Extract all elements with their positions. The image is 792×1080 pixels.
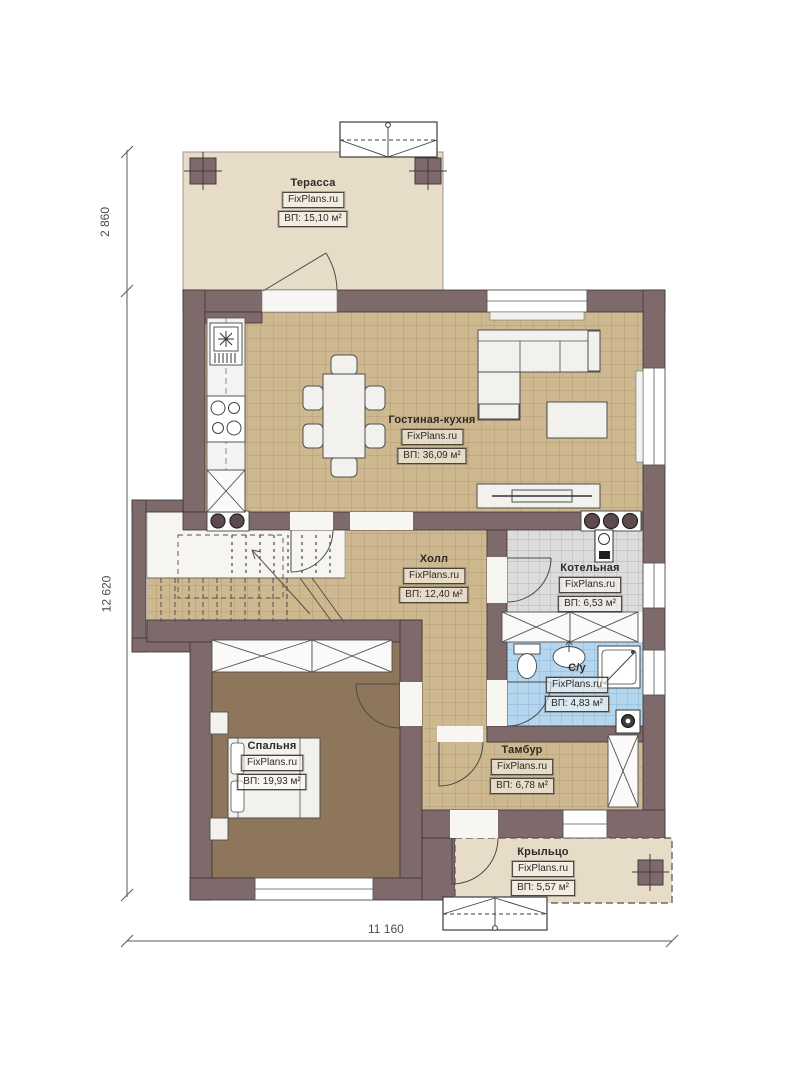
flue-right [581,511,641,531]
terrace-door-opening [262,290,337,312]
room-area: ВП: 4,83 м² [545,696,609,712]
room-name: Холл [399,553,468,565]
dimension-left-main: 12 620 [99,576,113,613]
watermark: FixPlans.ru [559,577,621,593]
stair-steps-floor [147,578,345,622]
window-boiler [643,563,665,608]
nightstand [210,818,228,840]
room-name: Терасса [278,177,347,189]
room-name: Тамбур [490,744,554,756]
room-area: ВП: 6,53 м² [558,596,622,612]
window-living-right [636,368,665,465]
exterior-stairs-top [340,122,437,157]
kitchen-counter [207,318,245,512]
watermark: FixPlans.ru [546,677,608,693]
flue-left [207,511,249,531]
dining-chair [331,457,357,477]
watermark: FixPlans.ru [403,568,465,584]
porch-column [632,854,669,891]
closet-bedroom-1 [212,640,312,672]
boiler-door-opening [487,557,507,603]
entrance-door-opening [450,810,498,838]
closet-boiler-1 [502,612,570,642]
room-label-living: Гостиная-кухня FixPlans.ru ВП: 36,09 м² [388,414,475,464]
room-area: ВП: 12,40 м² [399,587,468,603]
room-name: Гостиная-кухня [388,414,475,426]
tv-stand [477,484,600,508]
room-area: ВП: 36,09 м² [397,448,466,464]
window-vestibule [563,810,607,838]
dining-chair [365,386,385,410]
room-label-vestibule: Тамбур FixPlans.ru ВП: 6,78 м² [490,744,554,794]
room-label-hall: Холл FixPlans.ru ВП: 12,40 м² [399,553,468,603]
room-area: ВП: 19,93 м² [237,774,306,790]
terrace-column-left [184,152,222,190]
room-area: ВП: 15,10 м² [278,211,347,227]
dimension-left-top: 2 860 [98,207,112,237]
exterior-stairs-bottom [443,897,547,930]
room-name: С/у [545,662,609,674]
room-label-terrace: Терасса FixPlans.ru ВП: 15,10 м² [278,177,347,227]
room-name: Котельная [558,562,622,574]
window-bedroom [255,878,373,900]
room-label-bedroom: Спальня FixPlans.ru ВП: 19,93 м² [237,740,306,790]
room-name: Крыльцо [511,846,575,858]
vestibule-door-opening [437,726,483,742]
bedroom-door-opening [400,682,422,726]
dining-chair [365,424,385,448]
room-name: Спальня [237,740,306,752]
watermark: FixPlans.ru [282,192,344,208]
hall-door-opening [290,512,333,530]
room-area: ВП: 5,57 м² [511,880,575,896]
boiler-unit [595,530,613,562]
room-label-wc: С/у FixPlans.ru ВП: 4,83 м² [545,662,609,712]
watermark: FixPlans.ru [401,429,463,445]
floor-plan: Терасса FixPlans.ru ВП: 15,10 м² Гостина… [0,0,792,1080]
window-top [487,290,587,320]
closet-bedroom-2 [312,640,392,672]
corridor-floor [422,622,487,742]
bathroom-door-opening [487,680,507,726]
dining-chair [331,355,357,375]
kitchen-stove [207,396,245,442]
watermark: FixPlans.ru [241,755,303,771]
room-label-porch: Крыльцо FixPlans.ru ВП: 5,57 м² [511,846,575,896]
dining-chair [303,386,323,410]
closet-vestibule [608,735,638,807]
coffee-table [547,402,607,438]
plan-drawing [0,0,792,1080]
dimension-bottom: 11 160 [368,922,404,936]
closet-boiler-2 [570,612,638,642]
washing-machine [616,710,640,733]
hall-passage-opening [350,512,413,530]
watermark: FixPlans.ru [491,759,553,775]
nightstand [210,712,228,734]
watermark: FixPlans.ru [512,861,574,877]
terrace-column-right [409,152,447,190]
kitchen-sink [210,323,242,365]
room-area: ВП: 6,78 м² [490,778,554,794]
dining-chair [303,424,323,448]
dining-table [323,374,365,458]
kitchen-cabinet [207,470,245,512]
window-bathroom [643,650,665,695]
room-label-boiler: Котельная FixPlans.ru ВП: 6,53 м² [558,562,622,612]
